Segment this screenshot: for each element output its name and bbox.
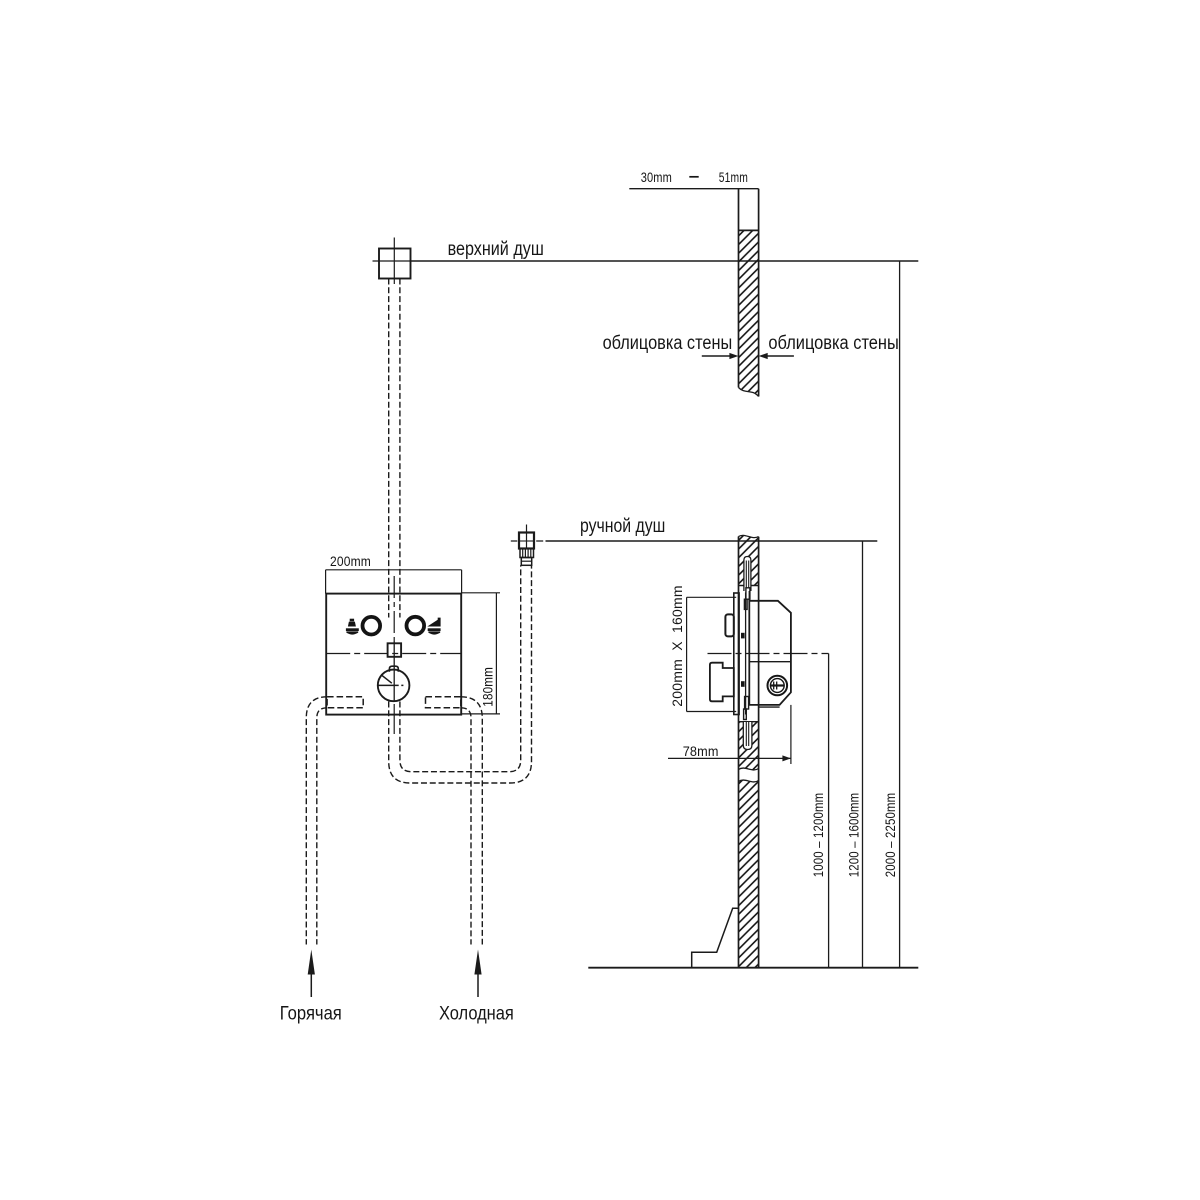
svg-text:30mm: 30mm <box>641 169 672 185</box>
svg-text:1000 – 1200mm: 1000 – 1200mm <box>810 793 826 878</box>
svg-text:200mm X 160mm: 200mm X 160mm <box>669 585 685 706</box>
svg-text:облицовка стены: облицовка стены <box>603 333 733 354</box>
svg-text:Холодная: Холодная <box>439 1004 514 1025</box>
svg-text:облицовка стены: облицовка стены <box>768 333 898 354</box>
svg-text:ручной душ: ручной душ <box>580 516 665 537</box>
svg-text:51mm: 51mm <box>719 169 748 185</box>
svg-text:78mm: 78mm <box>683 743 719 759</box>
svg-text:2000 – 2250mm: 2000 – 2250mm <box>882 793 898 878</box>
svg-text:верхний душ: верхний душ <box>448 239 544 260</box>
svg-text:200mm: 200mm <box>330 553 371 569</box>
svg-text:1200 – 1600mm: 1200 – 1600mm <box>845 793 861 878</box>
svg-text:Горячая: Горячая <box>280 1004 342 1025</box>
svg-text:180mm: 180mm <box>479 667 495 707</box>
